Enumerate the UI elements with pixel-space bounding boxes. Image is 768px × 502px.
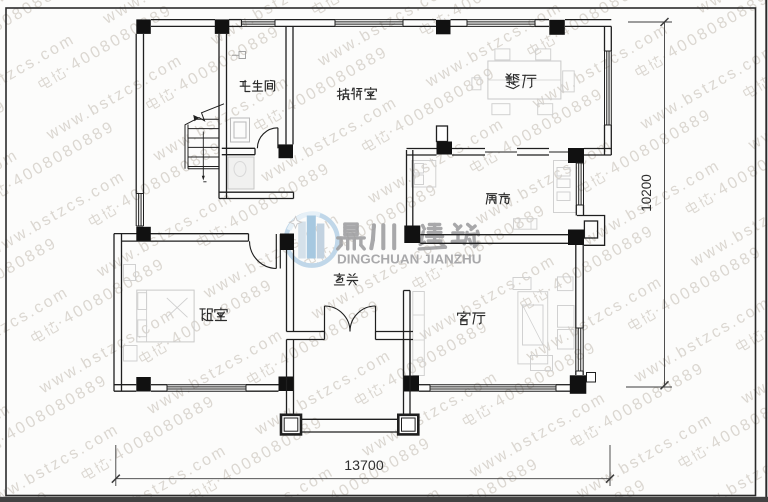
svg-text:13700: 13700 xyxy=(344,458,384,474)
svg-text:www.bstzcs.com www.bstzcs.: www.bstzcs.com www.bstzcs.com www.bstzcs… xyxy=(0,0,768,502)
svg-text:DINGCHUAN JIANZHU: DINGCHUAN JIANZHU xyxy=(337,253,482,267)
svg-text:10200: 10200 xyxy=(639,174,654,212)
